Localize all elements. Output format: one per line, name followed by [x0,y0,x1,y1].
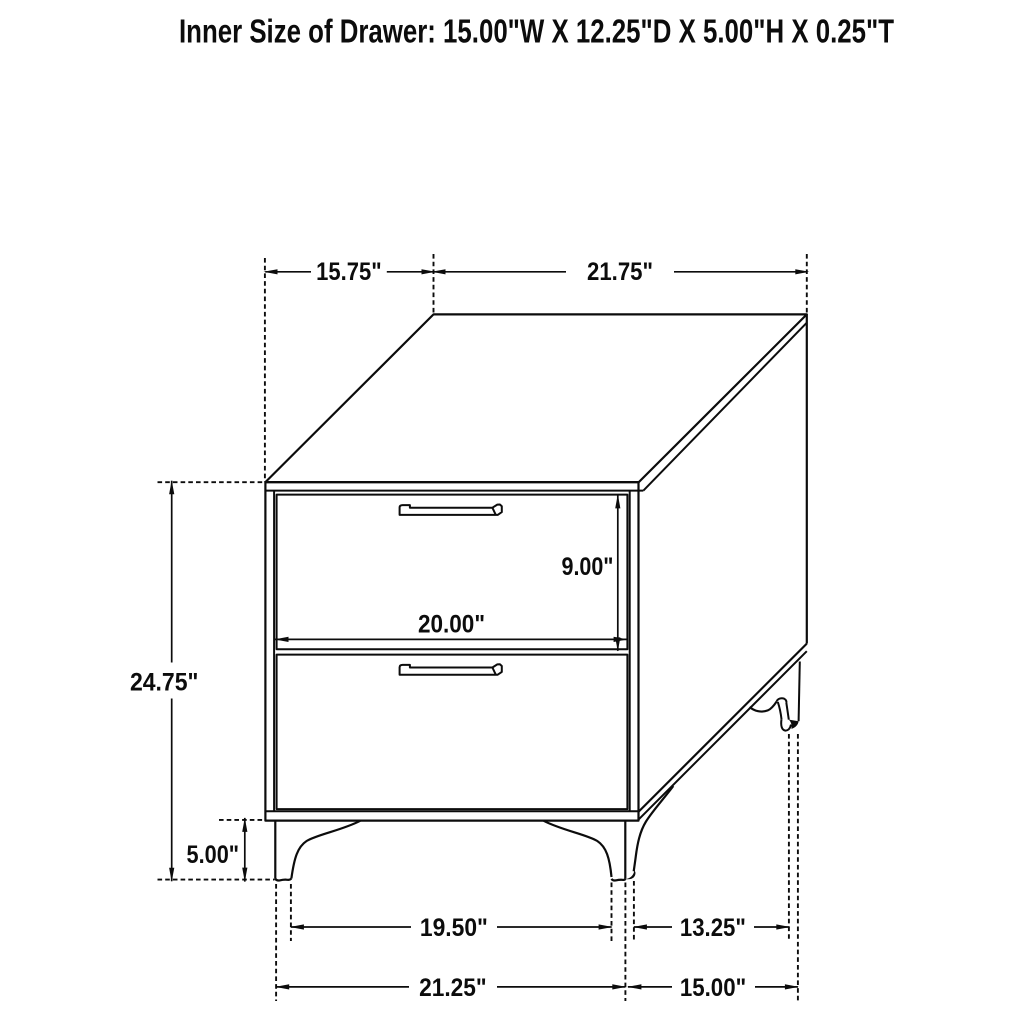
svg-text:9.00": 9.00" [562,553,614,581]
svg-text:21.75": 21.75" [587,258,653,286]
svg-text:15.75": 15.75" [316,258,382,286]
svg-text:20.00": 20.00" [418,611,485,639]
svg-text:21.25": 21.25" [419,974,487,1002]
svg-text:19.50": 19.50" [420,914,488,942]
svg-text:Inner Size of Drawer: 15.00"W: Inner Size of Drawer: 15.00"W X 12.25"D … [179,12,894,49]
svg-text:5.00": 5.00" [187,841,240,869]
svg-text:24.75": 24.75" [130,668,199,696]
svg-text:15.00": 15.00" [680,974,746,1002]
svg-text:13.25": 13.25" [680,914,746,942]
